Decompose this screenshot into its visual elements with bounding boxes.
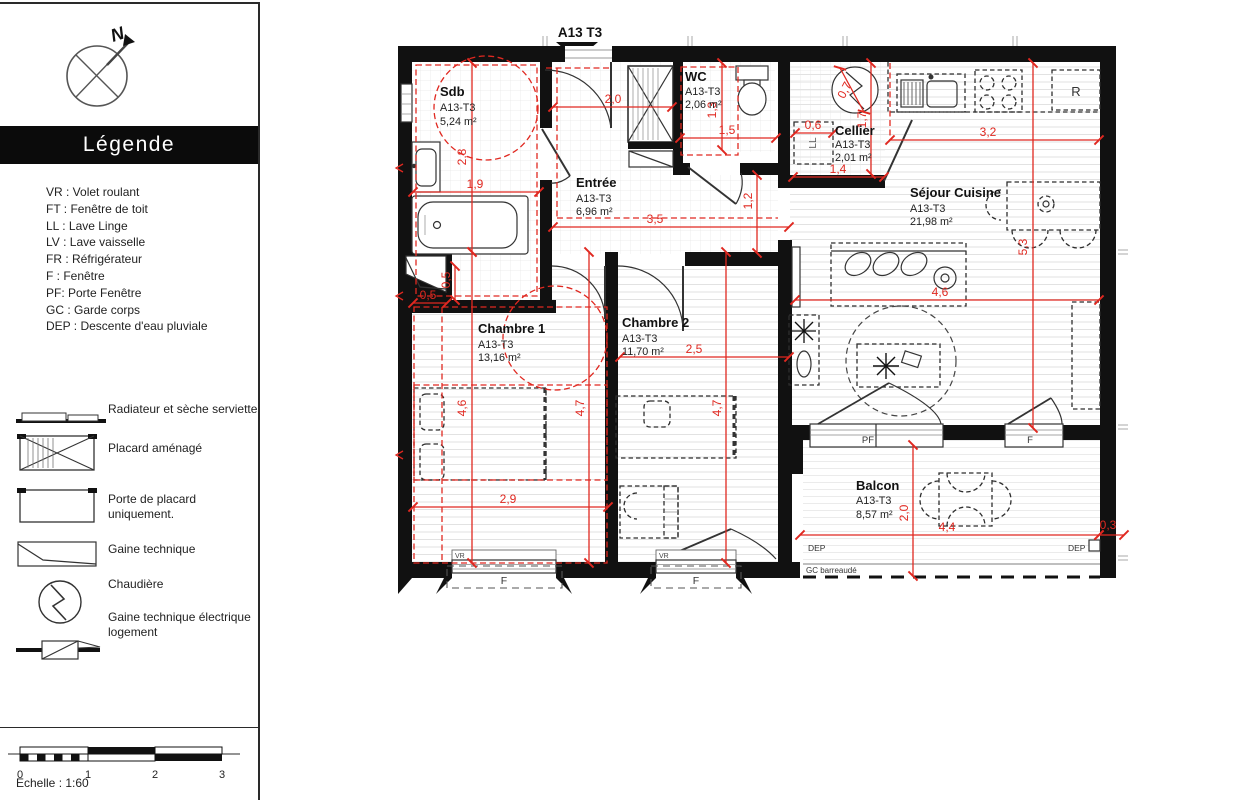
svg-text:6,96 m²: 6,96 m²	[576, 206, 613, 218]
svg-text:8,57 m²: 8,57 m²	[856, 509, 893, 521]
floor-plan: A13 T3	[390, 18, 1146, 600]
electric-duct-symbol-icon	[16, 636, 102, 664]
window-label: F	[693, 575, 699, 587]
downpipe	[1089, 540, 1100, 551]
dim-bath-width: 1,9	[467, 177, 484, 191]
svg-text:A13-T3: A13-T3	[622, 333, 657, 345]
svg-text:Chambre 2: Chambre 2	[622, 315, 689, 330]
svg-text:Balcon: Balcon	[856, 478, 899, 493]
abbr-lv: LV : Lave vaisselle	[46, 234, 208, 251]
symbol-label-radiator: Radiateur et sèche serviette	[108, 402, 258, 417]
panel-divider	[258, 2, 260, 800]
plant-icon	[792, 319, 816, 343]
dim-balcony-offset: 0,3	[1100, 518, 1117, 532]
dim-kitchen-width: 3,2	[980, 125, 997, 139]
dim-bedroom1-width: 2,9	[500, 492, 517, 506]
window-label: F	[1027, 435, 1033, 446]
unit-label: A13 T3	[558, 25, 603, 40]
boiler-symbol-icon	[36, 578, 86, 628]
symbol-label-electric-duct: Gaine technique électrique logement	[108, 610, 258, 639]
svg-text:A13-T3: A13-T3	[856, 495, 891, 507]
abbr-vr: VR : Volet roulant	[46, 184, 208, 201]
svg-text:5,24 m²: 5,24 m²	[440, 116, 477, 128]
dim-offset-h: 0,5	[420, 288, 437, 302]
dim-washer-width: 0,6	[805, 118, 822, 132]
washing-machine-label: LL	[808, 137, 819, 149]
fridge-label: R	[1071, 84, 1080, 99]
legend-abbreviations: VR : Volet roulant FT : Fenêtre de toit …	[46, 184, 208, 335]
compass: N	[55, 20, 150, 125]
svg-text:13,16 m²: 13,16 m²	[478, 352, 521, 364]
dim-living-width: 4,6	[932, 285, 949, 299]
dim-offset-v: 0,5	[439, 271, 453, 288]
roller-shutter-label: VR	[659, 553, 669, 560]
svg-text:A13-T3: A13-T3	[440, 102, 475, 114]
toilet-bowl	[738, 83, 766, 115]
radiator-symbol-icon	[16, 404, 108, 428]
closet-door-symbol-icon	[16, 487, 98, 525]
svg-text:A13-T3: A13-T3	[478, 339, 513, 351]
dim-cellar-width: 1,4	[830, 162, 847, 176]
abbr-ft: FT : Fenêtre de toit	[46, 201, 208, 218]
guardrail-label: GC barreaudé	[806, 566, 857, 575]
symbol-label-boiler: Chaudière	[108, 577, 258, 592]
scale-tick-3: 3	[219, 769, 225, 781]
floorplan-page: { "header": { "unit": "A13 T3" }, "compa…	[0, 0, 1247, 800]
symbol-label-closet-door: Porte de placard uniquement.	[108, 492, 258, 521]
svg-text:21,98 m²: 21,98 m²	[910, 216, 953, 228]
legend-title: Légende	[83, 133, 175, 157]
svg-text:WC: WC	[685, 69, 707, 84]
abbr-fr: FR : Réfrigérateur	[46, 251, 208, 268]
abbr-pf: PF: Porte Fenêtre	[46, 285, 208, 302]
svg-text:A13-T3: A13-T3	[910, 203, 945, 215]
dim-hall-width: 1,2	[741, 192, 755, 209]
svg-text:Chambre 1: Chambre 1	[478, 321, 545, 336]
abbr-dep: DEP : Descente d'eau pluviale	[46, 318, 208, 335]
svg-text:Cellier: Cellier	[835, 123, 875, 138]
window-label: F	[501, 575, 507, 587]
svg-text:Séjour Cuisine: Séjour Cuisine	[910, 185, 1001, 200]
french-window-label: PF	[862, 435, 874, 446]
svg-text:Entrée: Entrée	[576, 175, 616, 190]
scale-tick-2: 2	[152, 769, 158, 781]
room-label-cellier: Cellier A13-T3 2,01 m²	[835, 123, 875, 164]
svg-text:2,06 m²: 2,06 m²	[685, 99, 722, 111]
compass-north-label: N	[108, 22, 127, 45]
room-label-entree: Entrée A13-T3 6,96 m²	[576, 175, 616, 218]
svg-text:11,70 m²: 11,70 m²	[622, 346, 664, 358]
panel-top-border	[0, 2, 258, 4]
svg-text:A13-T3: A13-T3	[576, 193, 611, 205]
dim-bedroom1-depth2: 4,7	[573, 399, 587, 416]
dim-bedroom2-depth: 4,7	[710, 399, 724, 416]
dim-balcony-depth: 2,0	[897, 504, 911, 521]
toilet-tank	[736, 66, 768, 80]
dim-living-depth: 5,3	[1016, 238, 1030, 255]
svg-text:2,01 m²: 2,01 m²	[835, 152, 872, 164]
roller-shutter-label: VR	[455, 553, 465, 560]
downpipe-label: DEP	[1068, 543, 1086, 553]
scale-label: Echelle : 1:60	[16, 776, 89, 790]
dim-entry-width: 2,0	[605, 92, 622, 106]
fitted-closet	[628, 66, 673, 167]
technical-duct-symbol-icon	[16, 540, 100, 568]
symbol-label-closet: Placard aménagé	[108, 441, 258, 456]
abbr-ll: LL : Lave Linge	[46, 218, 208, 235]
abbr-f: F : Fenêtre	[46, 268, 208, 285]
svg-text:A13-T3: A13-T3	[685, 86, 720, 98]
dim-balcony-width: 4,4	[939, 520, 956, 534]
towel-radiator	[401, 84, 412, 122]
svg-text:A13-T3: A13-T3	[835, 139, 870, 151]
abbr-gc: GC : Garde corps	[46, 302, 208, 319]
dim-bedroom1-depth: 4,6	[455, 399, 469, 416]
legend-header: Légende	[0, 126, 258, 164]
dim-entry-length: 3,5	[647, 212, 664, 226]
symbol-label-duct: Gaine technique	[108, 542, 258, 557]
fitted-closet-symbol-icon	[16, 433, 98, 473]
dim-wc-width: 1,5	[719, 123, 736, 137]
svg-text:Sdb: Sdb	[440, 84, 465, 99]
dim-bedroom2-width: 2,5	[686, 342, 703, 356]
panel-scale-border	[0, 727, 258, 728]
downpipe-label: DEP	[808, 543, 826, 553]
dim-bath-depth: 2,8	[455, 148, 469, 165]
radiator	[792, 247, 800, 307]
